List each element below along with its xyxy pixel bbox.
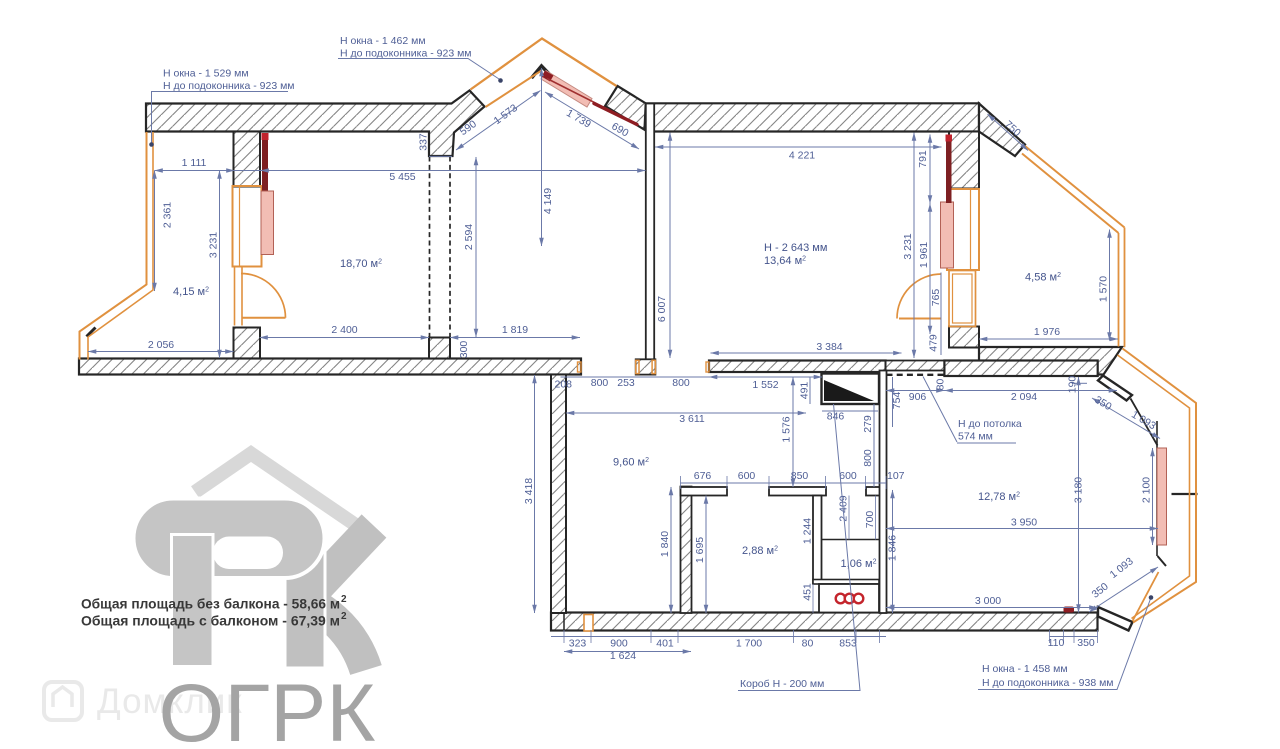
svg-text:479: 479 [928, 334, 940, 352]
svg-text:850: 850 [791, 470, 809, 482]
svg-text:1 552: 1 552 [752, 379, 778, 391]
svg-text:3 180: 3 180 [1073, 477, 1085, 503]
svg-text:2 361: 2 361 [162, 202, 174, 228]
svg-text:323: 323 [569, 638, 587, 650]
svg-text:1 846: 1 846 [887, 535, 899, 561]
svg-text:253: 253 [617, 377, 635, 389]
svg-text:1 819: 1 819 [502, 324, 528, 336]
svg-text:1,06 м2: 1,06 м2 [841, 558, 877, 570]
svg-text:1 976: 1 976 [1034, 326, 1060, 338]
svg-text:4,58 м2: 4,58 м2 [1025, 272, 1061, 284]
svg-text:1 700: 1 700 [736, 638, 762, 650]
svg-text:853: 853 [839, 638, 857, 650]
svg-text:107: 107 [887, 470, 905, 482]
svg-text:846: 846 [827, 411, 845, 423]
svg-text:3 611: 3 611 [679, 413, 705, 425]
svg-text:600: 600 [839, 470, 857, 482]
svg-text:2,88 м2: 2,88 м2 [742, 545, 778, 557]
svg-text:Короб Н - 200 мм: Короб Н - 200 мм [740, 678, 824, 690]
svg-text:3 950: 3 950 [1011, 517, 1037, 529]
svg-text:Н окна - 1 529 мм: Н окна - 1 529 мм [163, 68, 249, 80]
svg-text:12,78 м2: 12,78 м2 [978, 491, 1020, 503]
svg-text:300: 300 [458, 341, 470, 359]
svg-text:ОГРК: ОГРК [159, 668, 376, 749]
svg-text:800: 800 [862, 449, 874, 467]
svg-text:1 624: 1 624 [610, 650, 636, 662]
svg-text:1 840: 1 840 [659, 531, 671, 557]
svg-text:2 094: 2 094 [1011, 391, 1037, 403]
svg-text:Общая площадь без балкона - 5: Общая площадь без балкона - 58,66 м [81, 596, 340, 612]
svg-text:1 961: 1 961 [918, 242, 930, 268]
svg-text:2: 2 [341, 594, 347, 605]
svg-text:600: 600 [738, 470, 756, 482]
svg-text:3 231: 3 231 [902, 233, 914, 259]
svg-text:Общая площадь с балконом - 6: Общая площадь с балконом - 67,39 м [81, 613, 340, 629]
svg-text:80: 80 [935, 379, 947, 391]
svg-text:2 056: 2 056 [148, 339, 174, 351]
svg-text:9,60 м2: 9,60 м2 [613, 457, 649, 469]
svg-text:401: 401 [656, 638, 674, 650]
svg-text:574 мм: 574 мм [958, 431, 993, 443]
svg-text:5 455: 5 455 [389, 171, 415, 183]
svg-text:110: 110 [1048, 637, 1065, 649]
svg-text:765: 765 [930, 289, 942, 307]
svg-text:4 149: 4 149 [542, 188, 554, 214]
svg-text:900: 900 [610, 638, 628, 650]
svg-text:2 400: 2 400 [331, 324, 357, 336]
svg-text:1 695: 1 695 [694, 537, 706, 563]
svg-text:754: 754 [891, 392, 903, 410]
svg-text:80: 80 [802, 638, 814, 650]
svg-text:2: 2 [341, 611, 347, 622]
svg-text:1 576: 1 576 [781, 416, 793, 442]
svg-text:491: 491 [799, 382, 811, 400]
svg-text:Н до подоконника - 923 мм: Н до подоконника - 923 мм [163, 80, 295, 92]
svg-text:451: 451 [802, 583, 814, 601]
svg-text:190: 190 [1067, 376, 1079, 394]
svg-text:Н до подоконника - 938 мм: Н до подоконника - 938 мм [982, 677, 1114, 689]
svg-text:6 007: 6 007 [656, 296, 668, 322]
svg-text:906: 906 [909, 391, 927, 403]
svg-text:3 000: 3 000 [975, 595, 1001, 607]
svg-text:3 384: 3 384 [816, 341, 842, 353]
svg-text:4,15 м2: 4,15 м2 [173, 286, 209, 298]
svg-text:1 111: 1 111 [182, 157, 207, 169]
svg-text:279: 279 [862, 415, 874, 433]
svg-text:800: 800 [591, 377, 609, 389]
svg-text:Н окна - 1 458 мм: Н окна - 1 458 мм [982, 663, 1068, 675]
svg-text:800: 800 [672, 377, 690, 389]
svg-text:2 100: 2 100 [1141, 477, 1153, 503]
svg-text:Н до потолка: Н до потолка [958, 418, 1022, 430]
svg-text:3 231: 3 231 [208, 232, 220, 258]
svg-text:350: 350 [1077, 637, 1095, 649]
svg-text:791: 791 [917, 150, 929, 168]
svg-text:Н до подоконника - 923 мм: Н до подоконника - 923 мм [340, 48, 472, 60]
svg-text:3 418: 3 418 [523, 478, 535, 504]
svg-text:2 594: 2 594 [463, 224, 475, 250]
svg-text:676: 676 [694, 470, 712, 482]
svg-text:208: 208 [555, 379, 573, 391]
svg-text:1 244: 1 244 [802, 518, 814, 544]
svg-text:1 570: 1 570 [1098, 276, 1110, 302]
svg-text:13,64 м2: 13,64 м2 [764, 255, 806, 267]
svg-text:Н - 2 643 мм: Н - 2 643 мм [764, 242, 827, 254]
svg-text:4 221: 4 221 [789, 150, 815, 162]
svg-text:18,70 м2: 18,70 м2 [340, 258, 382, 270]
svg-text:Н окна - 1 462 мм: Н окна - 1 462 мм [340, 35, 426, 47]
svg-text:337: 337 [418, 133, 430, 151]
svg-text:700: 700 [864, 511, 876, 529]
